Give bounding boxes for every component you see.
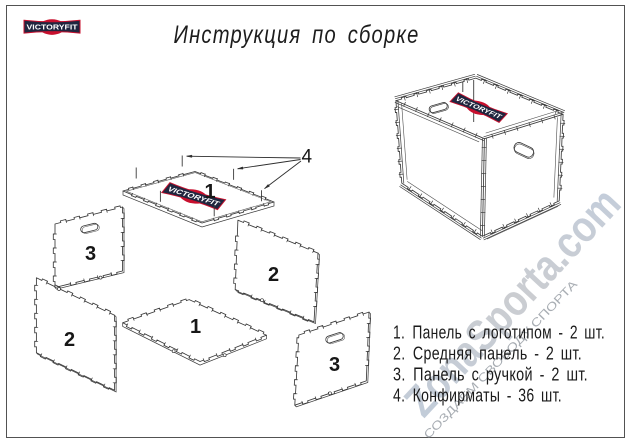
svg-text:3: 3 — [329, 354, 340, 376]
svg-text:2. Средняя панель - 2 шт.: 2. Средняя панель - 2 шт. — [393, 344, 582, 364]
svg-text:3. Панель с ручкой - 2 шт.: 3. Панель с ручкой - 2 шт. — [393, 364, 588, 384]
svg-text:4: 4 — [302, 147, 313, 168]
svg-text:2: 2 — [64, 329, 75, 351]
svg-text:4. Конфирматы - 36 шт.: 4. Конфирматы - 36 шт. — [393, 385, 562, 405]
svg-text:1. Панель с логотипом - 2 шт.: 1. Панель с логотипом - 2 шт. — [393, 323, 605, 343]
svg-text:Инструкция по сборке: Инструкция по сборке — [174, 21, 420, 49]
svg-text:3: 3 — [85, 243, 96, 265]
svg-text:1: 1 — [205, 181, 216, 203]
svg-text:1: 1 — [190, 316, 201, 338]
svg-text:2: 2 — [268, 264, 279, 286]
